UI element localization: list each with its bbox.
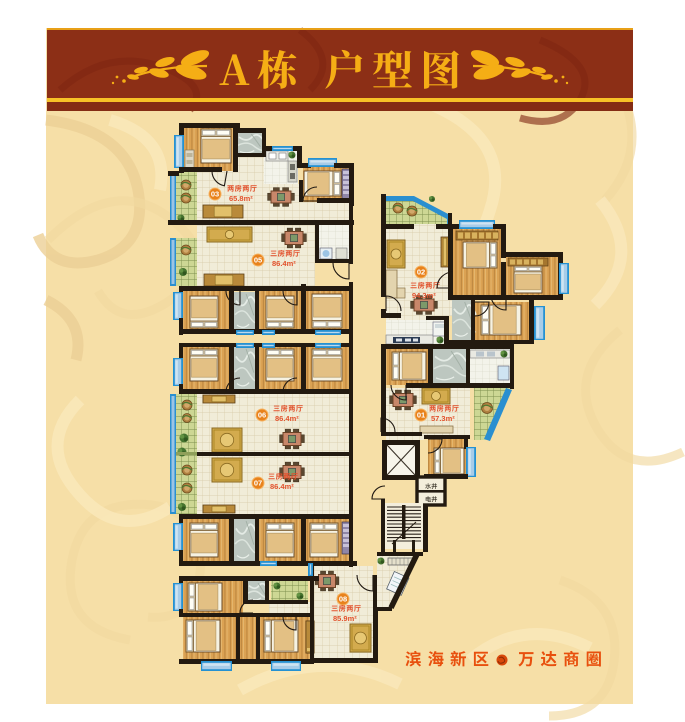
svg-text:05: 05 xyxy=(254,256,262,265)
svg-text:06: 06 xyxy=(258,411,266,420)
svg-text:94.3m²: 94.3m² xyxy=(412,291,436,300)
svg-text:01: 01 xyxy=(417,411,425,420)
svg-text:07: 07 xyxy=(254,479,262,488)
svg-text:85.9m²: 85.9m² xyxy=(333,614,357,623)
svg-text:86.4m²: 86.4m² xyxy=(270,482,294,491)
svg-text:03: 03 xyxy=(211,190,219,199)
svg-text:57.3m²: 57.3m² xyxy=(431,414,455,423)
svg-text:86.4m²: 86.4m² xyxy=(272,259,296,268)
svg-text:65.8m²: 65.8m² xyxy=(229,194,253,203)
svg-text:08: 08 xyxy=(339,595,347,604)
svg-text:86.4m²: 86.4m² xyxy=(275,414,299,423)
svg-text:02: 02 xyxy=(417,268,425,277)
